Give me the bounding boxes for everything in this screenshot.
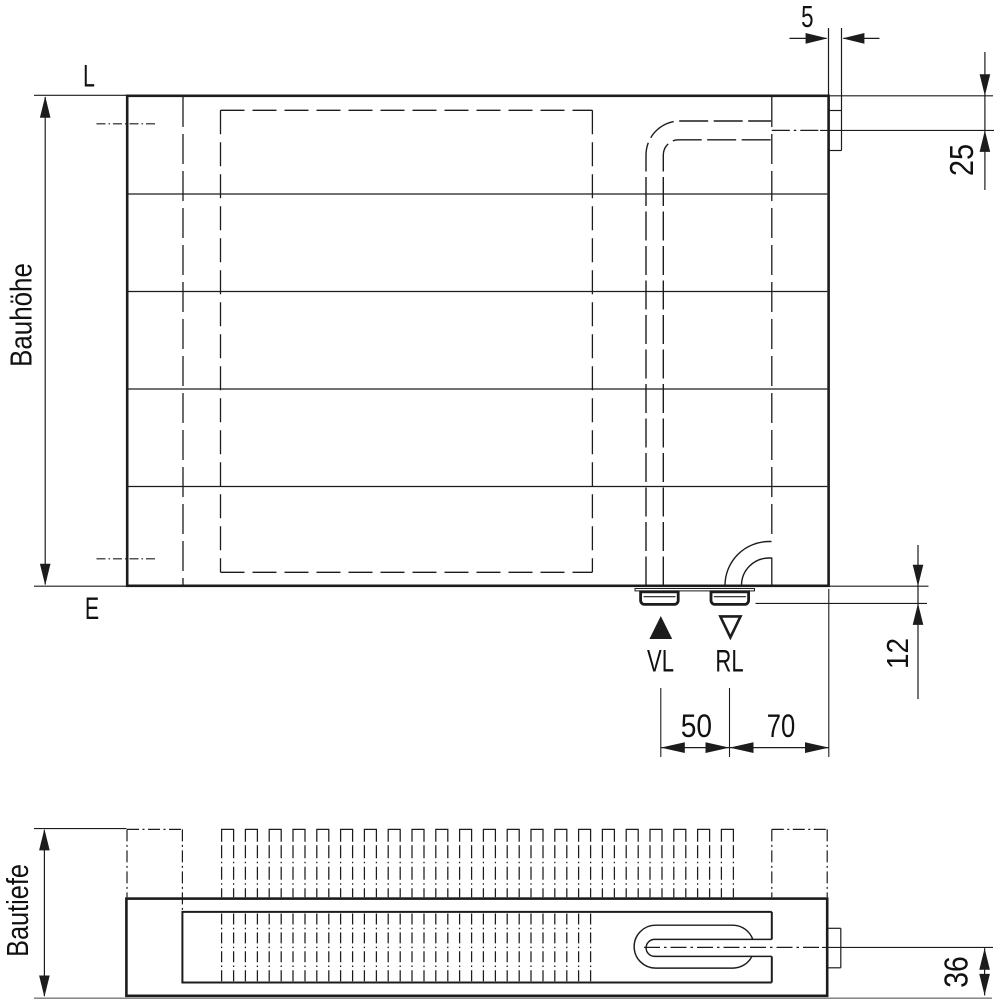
svg-text:25: 25 [943, 144, 980, 176]
svg-text:50: 50 [681, 709, 712, 744]
svg-text:70: 70 [767, 709, 795, 744]
svg-text:12: 12 [881, 638, 916, 669]
svg-text:Bauhöhe: Bauhöhe [4, 263, 38, 367]
svg-text:VL: VL [647, 643, 674, 679]
svg-text:Bautiefe: Bautiefe [1, 864, 35, 957]
svg-text:RL: RL [715, 643, 743, 679]
svg-text:L: L [83, 58, 95, 93]
svg-text:36: 36 [937, 956, 975, 988]
svg-text:5: 5 [801, 0, 813, 34]
svg-text:E: E [85, 591, 99, 626]
